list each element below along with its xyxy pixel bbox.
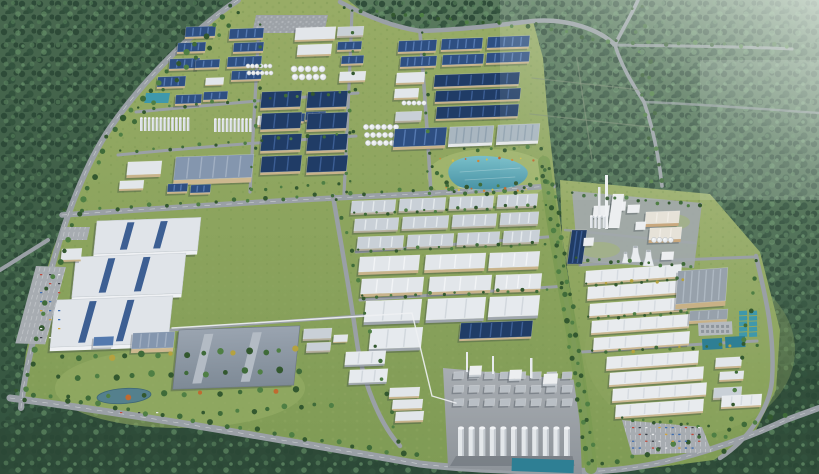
building [393,111,422,125]
solar-roof-warehouse [457,320,533,342]
area [749,327,757,332]
building [227,28,264,43]
water-treatment-pool [144,93,170,103]
building [356,255,420,277]
mist-overlay [500,0,819,200]
plant-stack [466,352,468,372]
building [258,91,302,113]
building [188,184,211,196]
building [400,215,449,232]
aerial-scene-canvas [0,0,819,474]
building [335,41,362,54]
building [391,127,447,152]
building [295,44,332,59]
plant-stack [530,358,533,378]
storage-tanks [291,66,325,72]
substation [698,321,733,336]
area [749,316,757,321]
building [258,134,302,156]
area [739,311,747,316]
building [426,275,492,297]
area [706,330,709,333]
area [721,330,724,333]
building [392,88,419,102]
area [711,325,714,328]
area [716,330,719,333]
building [486,295,540,322]
building [91,336,114,349]
building [387,387,420,401]
building [203,77,224,87]
large-flat-warehouse [171,326,300,392]
building [304,134,348,156]
building [394,72,425,87]
building [173,94,202,108]
building [304,342,331,355]
building [492,273,542,294]
mist-top [500,0,819,200]
building [450,213,497,230]
building [422,253,486,275]
clinker-silo-building [643,211,680,229]
building [398,56,437,71]
industrial-park-aerial-render [0,0,819,474]
area [716,325,719,328]
building [301,328,332,343]
storage-tanks [402,101,427,106]
large-plant-building [674,268,728,311]
building [304,112,348,134]
storage-tanks [365,140,394,145]
building [397,197,446,214]
area [721,325,724,328]
building [719,394,762,411]
building [352,217,399,234]
building [393,411,424,425]
building [231,42,264,56]
area [749,321,757,326]
building [335,26,364,40]
area [706,325,709,328]
building [117,180,144,193]
building [201,91,228,104]
plant-stack [492,356,494,374]
building [129,332,175,355]
building [424,297,486,325]
building [258,155,302,177]
building [713,357,742,371]
long-factory [171,154,254,187]
building [175,42,206,56]
building [193,59,220,72]
area [739,316,747,321]
process-building [293,27,336,44]
area [711,330,714,333]
building [362,299,422,327]
storage-tanks [292,74,326,80]
area [749,332,757,337]
building [225,56,262,71]
water-basin [512,458,574,473]
building [440,54,484,69]
area [701,325,704,328]
area [726,325,729,328]
building [439,38,483,54]
glass-roof-hall [446,125,494,148]
area [739,327,747,332]
building [717,371,744,384]
building [541,374,558,388]
factory-hall-middle [69,253,186,303]
building [183,26,216,41]
area [701,330,704,333]
building [390,399,423,413]
parking-lines-north [59,227,90,240]
building [165,183,188,195]
building [258,112,302,134]
building [304,155,348,177]
building [396,40,437,56]
building [486,251,540,272]
building [125,161,162,180]
building [367,327,423,354]
building [498,212,539,229]
building [339,55,364,67]
area [726,330,729,333]
